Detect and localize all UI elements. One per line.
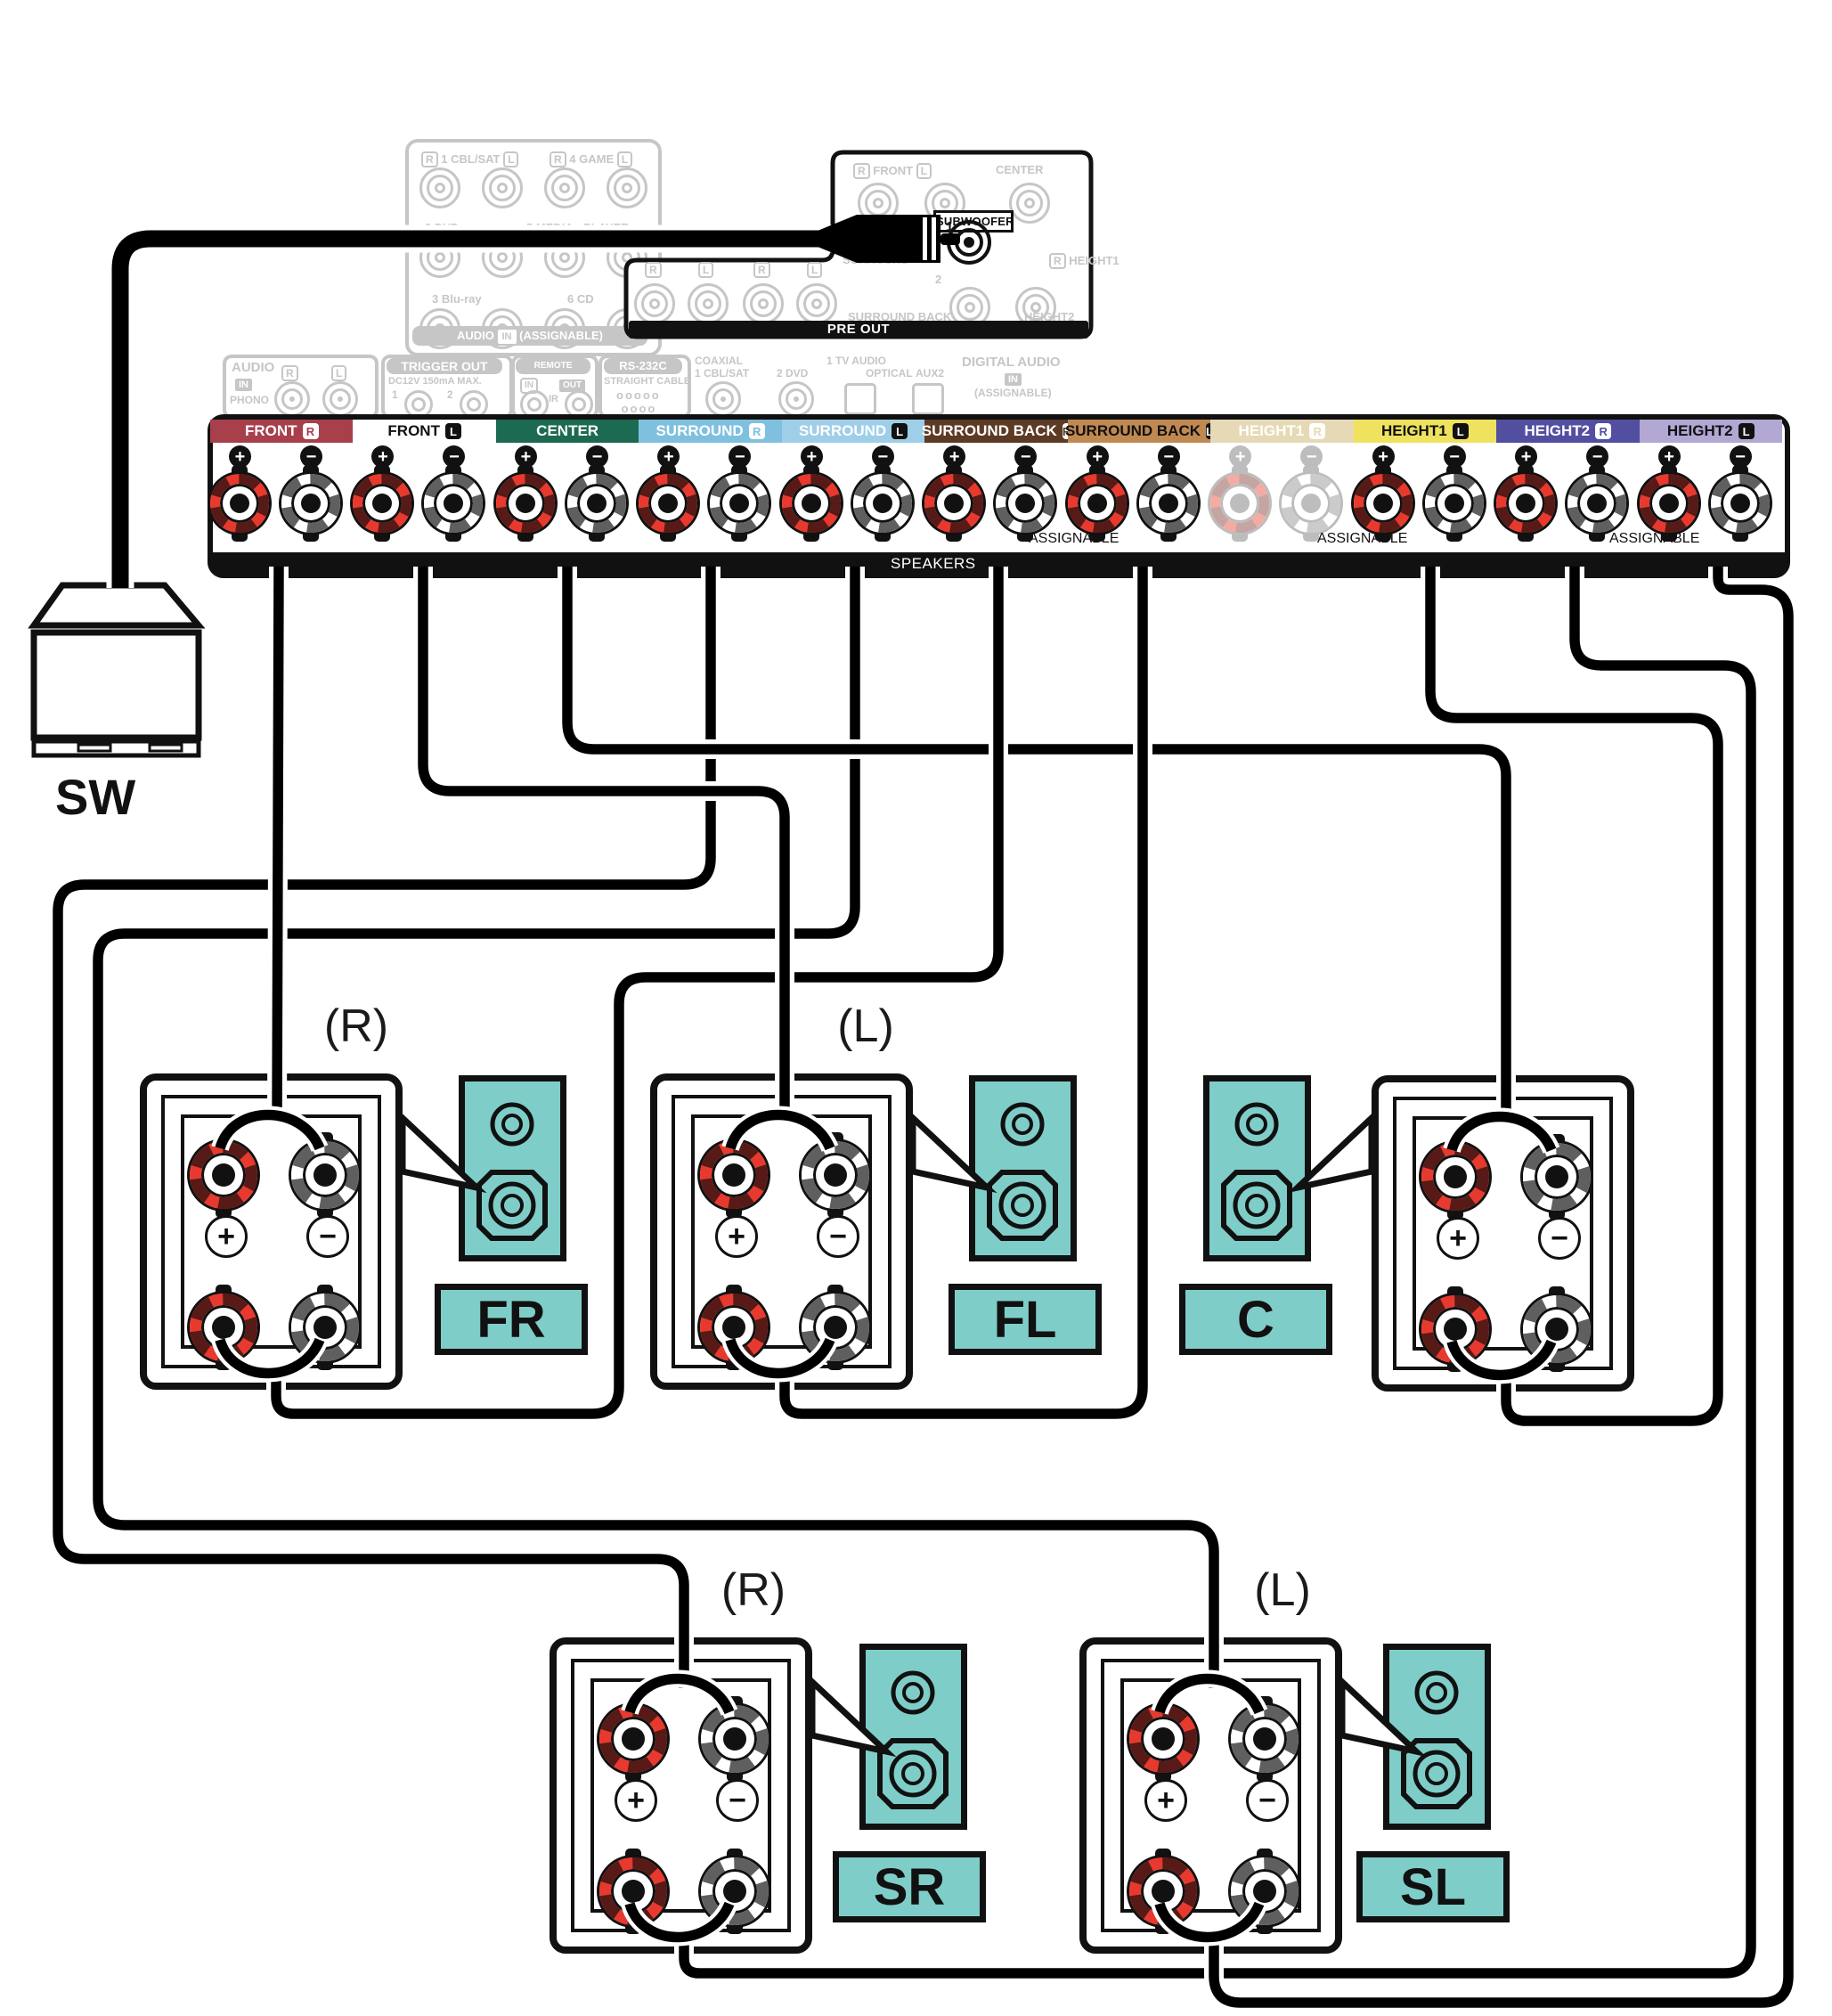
- cable-layer: [0, 0, 1832, 2016]
- cable-surround_back_l: [785, 567, 1143, 1414]
- cable-height2_r: [684, 567, 1751, 1973]
- cable-subwoofer: [120, 239, 846, 588]
- cable-surround_back_r: [276, 567, 998, 1414]
- cable-front_r: [277, 567, 279, 1123]
- callout-beak-SL: [1342, 1682, 1416, 1751]
- callout-beak-SR: [812, 1682, 886, 1751]
- cable-height1_l: [1430, 567, 1718, 1421]
- speaker-connection-diagram: R 1 CBL/SAT L R 4 GAME L 2 DVD 5 MEDIA P…: [0, 0, 1832, 2016]
- callout-beak-FR: [403, 1118, 476, 1188]
- cable-front_l: [423, 567, 785, 1123]
- callout-beak-FL: [913, 1118, 987, 1188]
- callout-beak-C: [1298, 1118, 1372, 1188]
- rca-plug: [818, 215, 960, 263]
